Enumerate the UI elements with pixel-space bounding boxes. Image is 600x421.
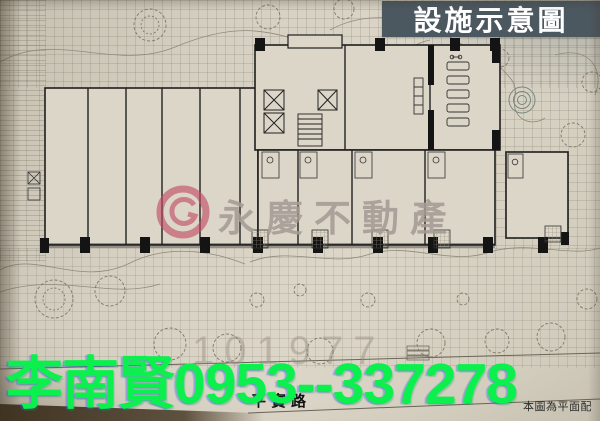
bottom-right-caption: 本圖為平面配 bbox=[523, 398, 600, 414]
facility-badge: 設施示意圖 bbox=[382, 1, 600, 37]
agent-contact-overlay: 李南賢0953--337278 bbox=[6, 338, 517, 420]
agent-name: 李南賢 bbox=[6, 352, 174, 416]
agent-phone: 0953--337278 bbox=[174, 352, 517, 416]
brand-watermark: 永慶不動產 bbox=[218, 188, 458, 242]
facility-badge-label: 設施示意圖 bbox=[413, 0, 568, 39]
pond-icon bbox=[509, 87, 535, 113]
facility-floorplan-photo: 設施示意圖 S1 S2 S3 S5 S6 S7 S8 S9 S10 S11 A梯… bbox=[0, 0, 600, 421]
